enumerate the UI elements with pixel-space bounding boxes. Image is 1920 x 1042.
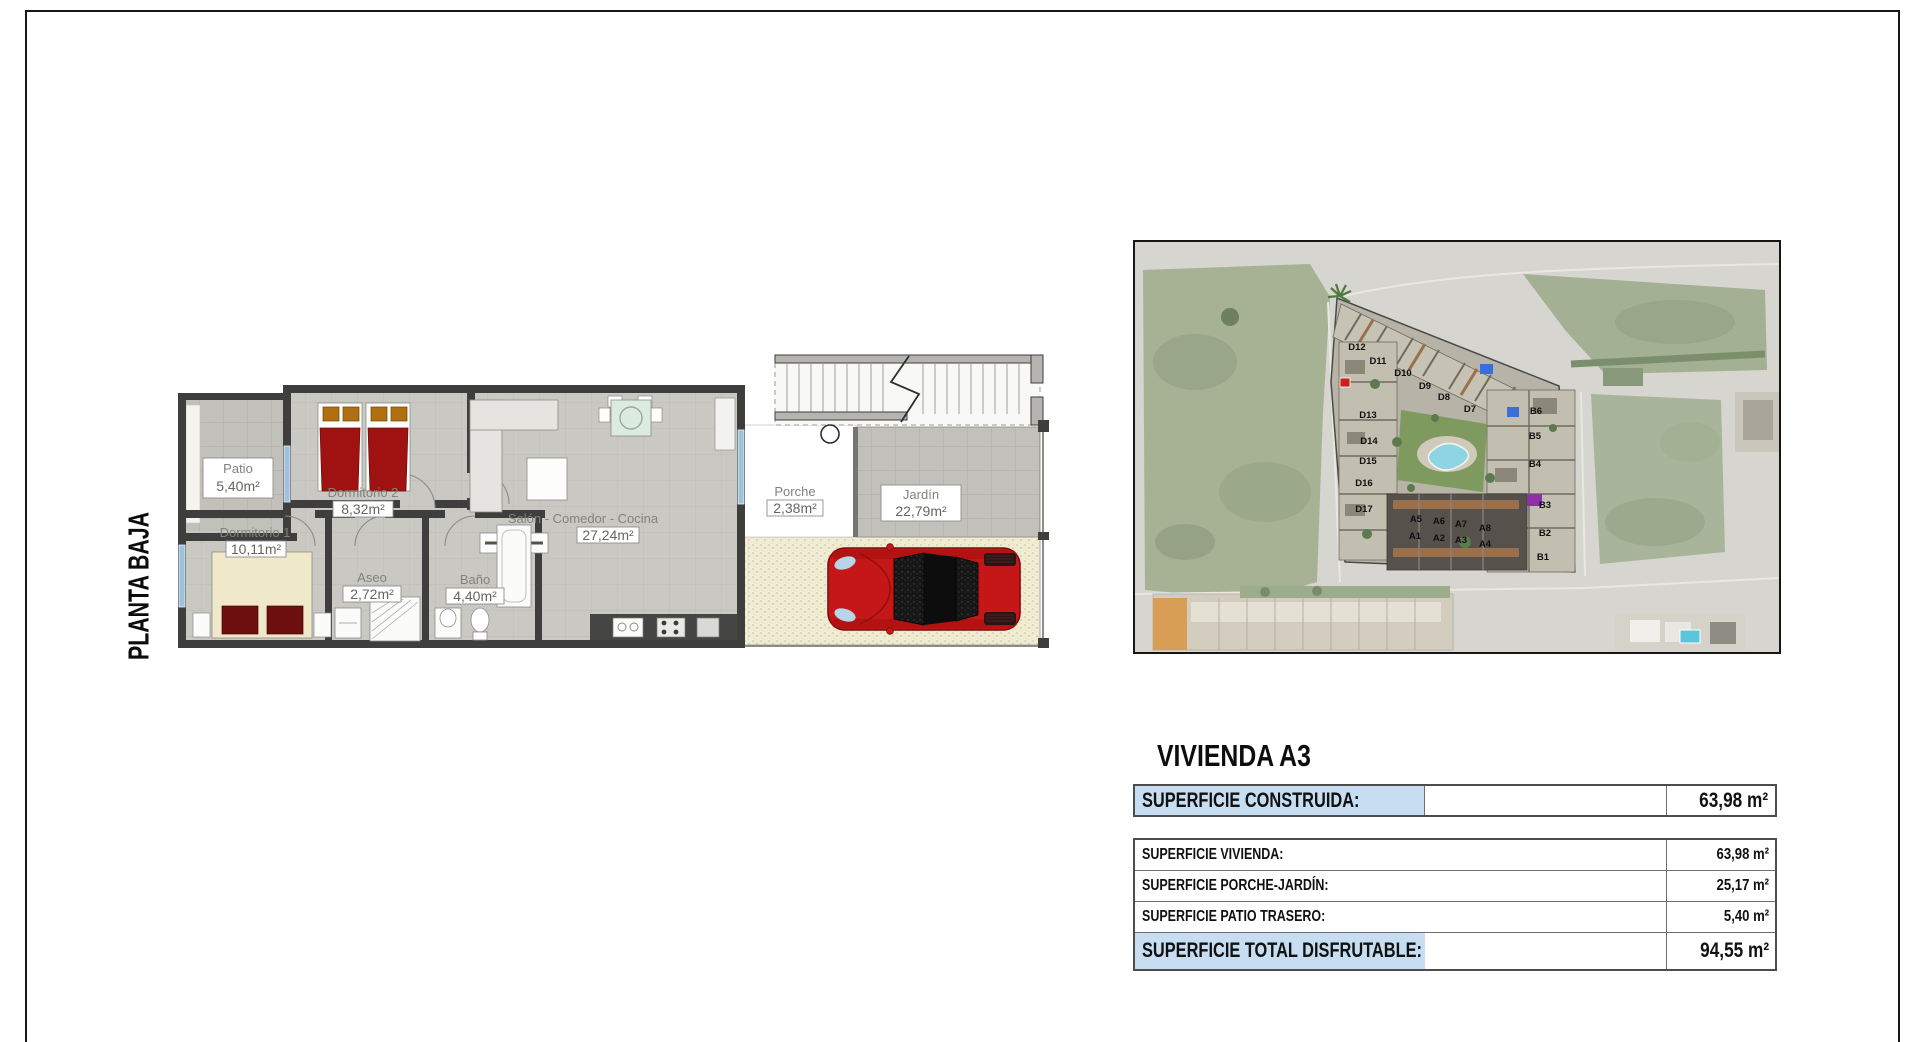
floor-title: PLANTA BAJA: [122, 512, 156, 660]
surface-built-spacer-cell: [1425, 786, 1667, 815]
map-unit-label: D12: [1348, 342, 1365, 353]
surface-built-value: 63,98 m²: [1699, 789, 1768, 813]
map-unit-label: A1: [1409, 531, 1422, 542]
svg-text:8,32m²: 8,32m²: [341, 501, 385, 517]
site-map: D12 D11 D10 D9 D8 D7 D13 D14 D15 D16 D17…: [1133, 240, 1781, 654]
map-unit-label: A4: [1479, 539, 1492, 550]
kitchen-counter: [590, 614, 737, 640]
svg-text:Patio: Patio: [223, 461, 253, 476]
table-row: SUPERFICIE VIVIENDA: 63,98 m²: [1135, 840, 1775, 871]
map-unit-label: B3: [1539, 500, 1551, 511]
map-unit-label: D9: [1419, 381, 1431, 392]
row-value: 25,17 m²: [1716, 877, 1769, 895]
total-label: SUPERFICIE TOTAL DISFRUTABLE:: [1142, 939, 1422, 963]
dwelling-title: VIVIENDA A3: [1157, 738, 1311, 774]
surface-built-value-cell: 63,98 m²: [1667, 786, 1775, 815]
bed-dorm1: [193, 552, 331, 638]
stairs: [775, 355, 1043, 425]
svg-text:22,79m²: 22,79m²: [895, 503, 947, 519]
row-value: 63,98 m²: [1716, 846, 1769, 864]
map-unit-label: B4: [1529, 459, 1542, 470]
row-label: SUPERFICIE PORCHE-JARDÍN:: [1142, 877, 1329, 895]
map-unit-label: A3: [1455, 535, 1467, 546]
map-unit-label: A5: [1410, 514, 1423, 525]
surface-built-table: SUPERFICIE CONSTRUIDA: 63,98 m²: [1133, 784, 1777, 817]
svg-text:4,40m²: 4,40m²: [453, 588, 497, 604]
patio-strip: [186, 405, 200, 523]
svg-text:27,24m²: 27,24m²: [582, 527, 634, 543]
row-label: SUPERFICIE VIVIENDA:: [1142, 846, 1283, 864]
label-porche: Porche 2,38m²: [767, 484, 823, 516]
label-dorm1: Dormitorio 1 10,11m²: [220, 525, 291, 557]
map-unit-label: D8: [1438, 392, 1450, 403]
surface-built-label: SUPERFICIE CONSTRUIDA:: [1142, 789, 1360, 813]
total-label-cell: SUPERFICIE TOTAL DISFRUTABLE:: [1135, 933, 1425, 969]
total-value: 94,55 m²: [1700, 939, 1769, 963]
map-unit-label: D17: [1355, 504, 1372, 515]
map-unit-label: B5: [1529, 431, 1542, 442]
svg-text:Porche: Porche: [774, 484, 815, 499]
map-unit-label: A8: [1479, 523, 1491, 534]
map-unit-label: B1: [1537, 552, 1550, 563]
floor-plan: Patio 5,40m² Dormitorio 2 8,32m² Dormito…: [175, 350, 1060, 652]
label-patio: Patio 5,40m²: [203, 458, 273, 498]
map-unit-label: B6: [1530, 406, 1542, 417]
cabinet: [715, 398, 735, 450]
table-row: SUPERFICIE PATIO TRASERO: 5,40 m²: [1135, 902, 1775, 933]
map-unit-label: D7: [1464, 404, 1476, 415]
svg-text:Salón - Comedor - Cocina: Salón - Comedor - Cocina: [508, 511, 659, 526]
table-row: SUPERFICIE PORCHE-JARDÍN: 25,17 m²: [1135, 871, 1775, 902]
label-dorm2: Dormitorio 2 8,32m²: [328, 485, 399, 517]
map-unit-label: D15: [1359, 456, 1377, 467]
map-unit-label: D16: [1355, 478, 1372, 489]
porche-area: [742, 425, 856, 537]
svg-text:Aseo: Aseo: [357, 570, 387, 585]
car-top-view: [828, 544, 1020, 635]
svg-text:10,11m²: 10,11m²: [231, 541, 282, 557]
map-unit-label: A7: [1455, 519, 1467, 530]
svg-text:Dormitorio 1: Dormitorio 1: [220, 525, 291, 540]
svg-text:Dormitorio 2: Dormitorio 2: [328, 485, 399, 500]
map-unit-label: D14: [1360, 436, 1378, 447]
svg-text:2,72m²: 2,72m²: [350, 586, 394, 602]
svg-text:Jardín: Jardín: [903, 487, 939, 502]
map-unit-label: B2: [1539, 528, 1551, 539]
map-unit-label: A6: [1433, 516, 1445, 527]
table-row-total: SUPERFICIE TOTAL DISFRUTABLE: 94,55 m²: [1135, 933, 1775, 969]
svg-text:Baño: Baño: [460, 572, 490, 587]
surface-detail-table: SUPERFICIE VIVIENDA: 63,98 m² SUPERFICIE…: [1133, 838, 1777, 971]
surface-built-label-cell: SUPERFICIE CONSTRUIDA:: [1135, 786, 1425, 815]
map-unit-label: D10: [1394, 368, 1411, 379]
porch-column: [821, 425, 839, 443]
map-unit-label: A2: [1433, 533, 1445, 544]
svg-text:2,38m²: 2,38m²: [773, 500, 817, 516]
svg-text:5,40m²: 5,40m²: [216, 478, 260, 494]
map-unit-label: D11: [1370, 356, 1388, 367]
floor-plan-drawing: Patio 5,40m² Dormitorio 2 8,32m² Dormito…: [175, 350, 1060, 652]
row-value: 5,40 m²: [1724, 908, 1769, 926]
map-unit-label: D13: [1359, 410, 1376, 421]
label-jardin: Jardín 22,79m²: [881, 485, 961, 521]
row-label: SUPERFICIE PATIO TRASERO:: [1142, 908, 1325, 926]
